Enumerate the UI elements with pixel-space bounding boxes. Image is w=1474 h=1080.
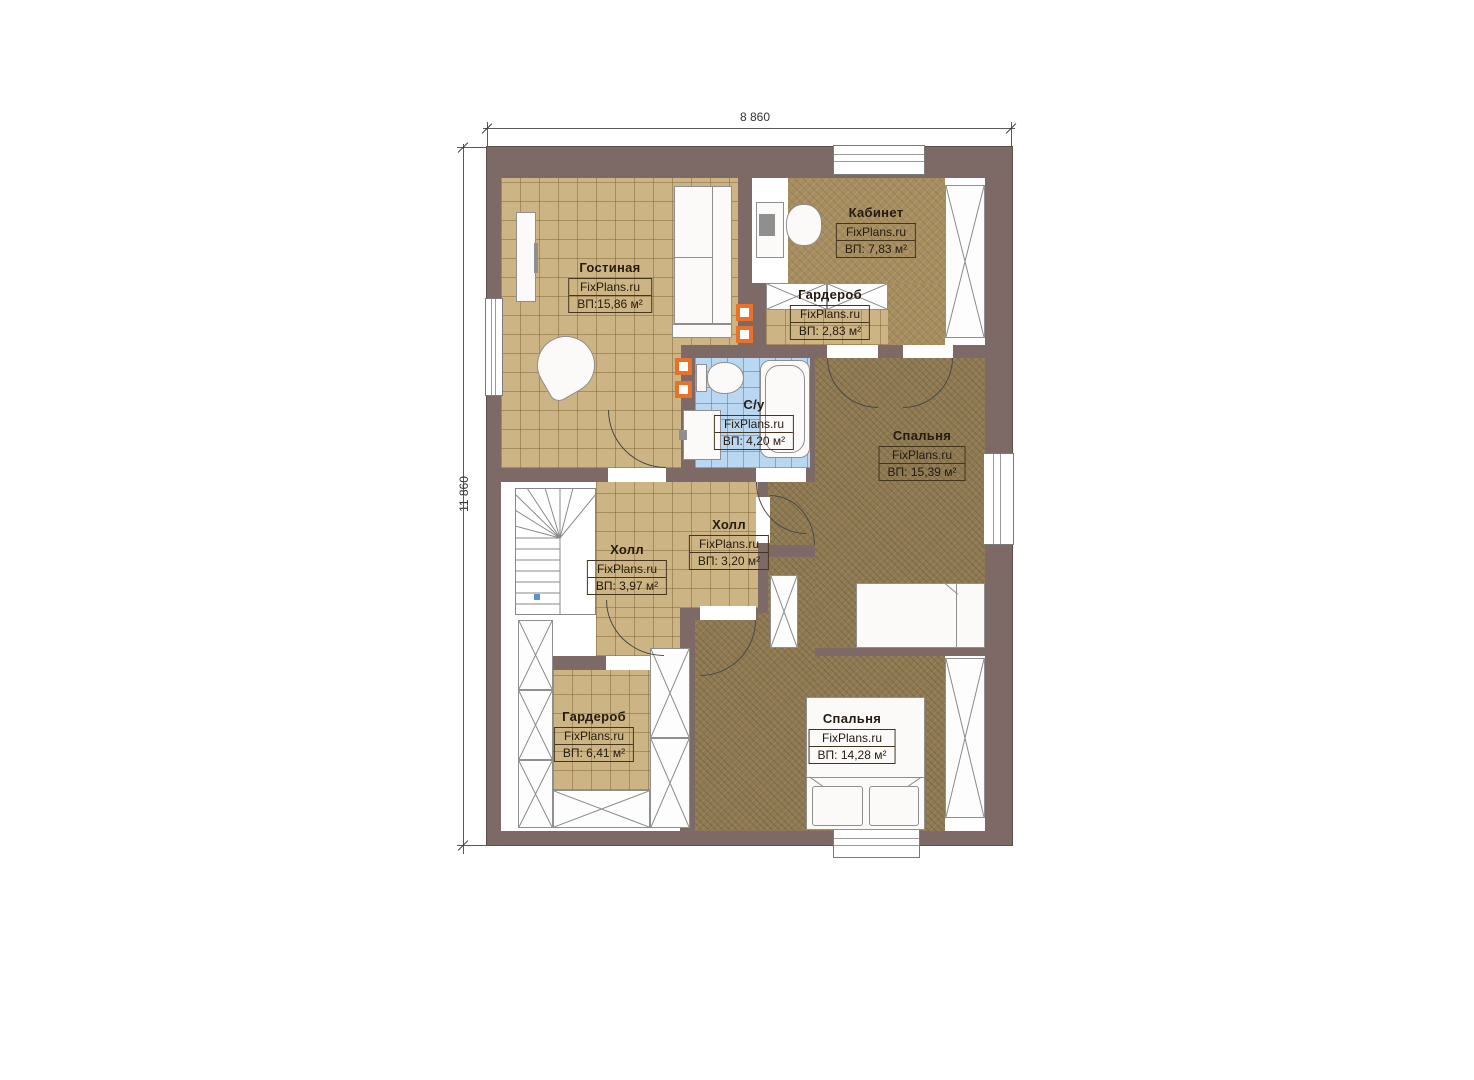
sofa — [674, 186, 732, 324]
room-name: Холл — [689, 517, 769, 532]
vent-duct-icon — [736, 326, 753, 343]
room-area: ВП: 3,20 м² — [690, 553, 768, 569]
office-chair — [786, 204, 822, 246]
window-bottom — [833, 829, 920, 858]
room-area: ВП: 7,83 м² — [837, 241, 915, 257]
wall-bedrooms-divider — [815, 648, 985, 656]
closet-wardrobe-left-3 — [518, 760, 553, 828]
stairs — [515, 488, 596, 615]
outer-wall-left — [487, 147, 501, 845]
tv-stand — [516, 212, 536, 302]
room-brand: FixPlans.ru — [791, 306, 869, 323]
room-label-wardrobe-bottom: Гардероб FixPlans.ru ВП: 6,41 м² — [554, 709, 634, 762]
closet-wardrobe-right-2 — [650, 738, 690, 828]
closet-wardrobe-left-1 — [518, 620, 553, 690]
single-bed — [856, 583, 985, 648]
room-area: ВП: 6,41 м² — [555, 745, 633, 761]
room-area: ВП: 3,97 м² — [588, 578, 666, 594]
room-label-hall-small: Холл FixPlans.ru ВП: 3,20 м² — [689, 517, 769, 570]
room-area: ВП: 14,28 м² — [810, 747, 895, 763]
door-threshold-bedroom-a — [827, 345, 878, 358]
vent-duct-icon — [675, 381, 692, 398]
dimension-height-label: 11 860 — [457, 466, 471, 522]
wall-nook-top — [768, 545, 815, 557]
x-brace-icon — [554, 791, 649, 827]
room-name: Гардероб — [790, 287, 870, 302]
door-threshold-bedroom-bottom — [700, 606, 756, 620]
room-label-hall-main: Холл FixPlans.ru ВП: 3,97 м² — [587, 542, 667, 595]
toilet — [707, 362, 744, 394]
window-left — [485, 298, 503, 396]
room-brand: FixPlans.ru — [810, 730, 895, 747]
closet-nook — [770, 575, 798, 648]
vent-duct-icon — [675, 358, 692, 375]
closet-bedroom-bottom — [945, 658, 985, 818]
closet-wardrobe-right-1 — [650, 648, 690, 738]
room-name: Гостиная — [568, 260, 652, 275]
closet-office — [945, 185, 985, 338]
tv-screen — [534, 243, 538, 273]
room-area: ВП: 4,20 м² — [715, 433, 793, 449]
dimension-width-line — [483, 128, 1015, 129]
room-info-box: FixPlans.ru ВП: 3,20 м² — [689, 535, 769, 570]
sofa-cushion-line — [674, 257, 712, 258]
room-label-office: Кабинет FixPlans.ru ВП: 7,83 м² — [836, 205, 916, 258]
window-top — [833, 145, 925, 175]
double-bed-blanket-line — [806, 777, 925, 778]
dimension-width-label: 8 860 — [725, 110, 785, 124]
room-info-box: FixPlans.ru ВП: 3,97 м² — [587, 560, 667, 595]
door-threshold-bathroom — [756, 468, 806, 482]
door-threshold-living — [608, 468, 666, 482]
room-brand: FixPlans.ru — [715, 416, 793, 433]
x-brace-icon — [519, 621, 552, 689]
x-brace-icon — [946, 186, 984, 337]
room-name: Гардероб — [554, 709, 634, 724]
wall-wardrobe-small-left — [752, 283, 766, 345]
closet-wardrobe-bottom — [553, 790, 650, 828]
x-brace-icon — [519, 691, 552, 759]
x-brace-icon — [651, 649, 689, 737]
room-name: Холл — [587, 542, 667, 557]
room-area: ВП: 15,39 м² — [880, 464, 965, 480]
pillow-left — [812, 786, 863, 826]
sofa-backrest-line — [712, 186, 713, 324]
room-label-bedroom-bottom: Спальня FixPlans.ru ВП: 14,28 м² — [809, 711, 896, 764]
x-brace-icon — [946, 659, 984, 817]
room-floor-office-lower — [888, 283, 945, 345]
x-brace-icon — [519, 761, 552, 827]
room-info-box: FixPlans.ru ВП:15,86 м² — [568, 278, 652, 313]
room-label-bathroom: С/у FixPlans.ru ВП: 4,20 м² — [714, 397, 794, 450]
room-brand: FixPlans.ru — [880, 447, 965, 464]
room-name: Кабинет — [836, 205, 916, 220]
floor-plan-canvas: 8 860 11 860 — [0, 0, 1474, 1080]
room-brand: FixPlans.ru — [837, 224, 915, 241]
door-threshold-bedroom-b — [903, 345, 953, 358]
room-brand: FixPlans.ru — [690, 536, 768, 553]
room-brand: FixPlans.ru — [555, 728, 633, 745]
room-info-box: FixPlans.ru ВП: 14,28 м² — [809, 729, 896, 764]
toilet-tank — [696, 364, 707, 392]
sink-faucet — [679, 430, 687, 440]
room-label-wardrobe-small: Гардероб FixPlans.ru ВП: 2,83 м² — [790, 287, 870, 340]
stairs-drawing — [515, 488, 596, 615]
room-info-box: FixPlans.ru ВП: 15,39 м² — [879, 446, 966, 481]
room-info-box: FixPlans.ru ВП: 2,83 м² — [790, 305, 870, 340]
pillow-right — [869, 786, 919, 826]
room-info-box: FixPlans.ru ВП: 6,41 м² — [554, 727, 634, 762]
room-name: Спальня — [879, 428, 966, 443]
outer-wall-top — [487, 147, 1012, 178]
room-brand: FixPlans.ru — [588, 561, 666, 578]
room-label-bedroom-right: Спальня FixPlans.ru ВП: 15,39 м² — [879, 428, 966, 481]
room-name: С/у — [714, 397, 794, 412]
outer-wall-bottom — [487, 831, 1012, 845]
wall-bathroom-right — [810, 358, 815, 468]
room-info-box: FixPlans.ru ВП: 4,20 м² — [714, 415, 794, 450]
window-right — [983, 453, 1014, 545]
x-brace-icon — [651, 739, 689, 827]
sofa-armrest — [672, 324, 732, 338]
room-info-box: FixPlans.ru ВП: 7,83 м² — [836, 223, 916, 258]
room-label-living: Гостиная FixPlans.ru ВП:15,86 м² — [568, 260, 652, 313]
room-area: ВП: 2,83 м² — [791, 323, 869, 339]
room-area: ВП:15,86 м² — [569, 296, 651, 312]
x-brace-icon — [771, 576, 797, 647]
desk-monitor — [759, 214, 775, 236]
vent-duct-icon — [736, 304, 753, 321]
room-brand: FixPlans.ru — [569, 279, 651, 296]
closet-wardrobe-left-2 — [518, 690, 553, 760]
room-name: Спальня — [809, 711, 896, 726]
